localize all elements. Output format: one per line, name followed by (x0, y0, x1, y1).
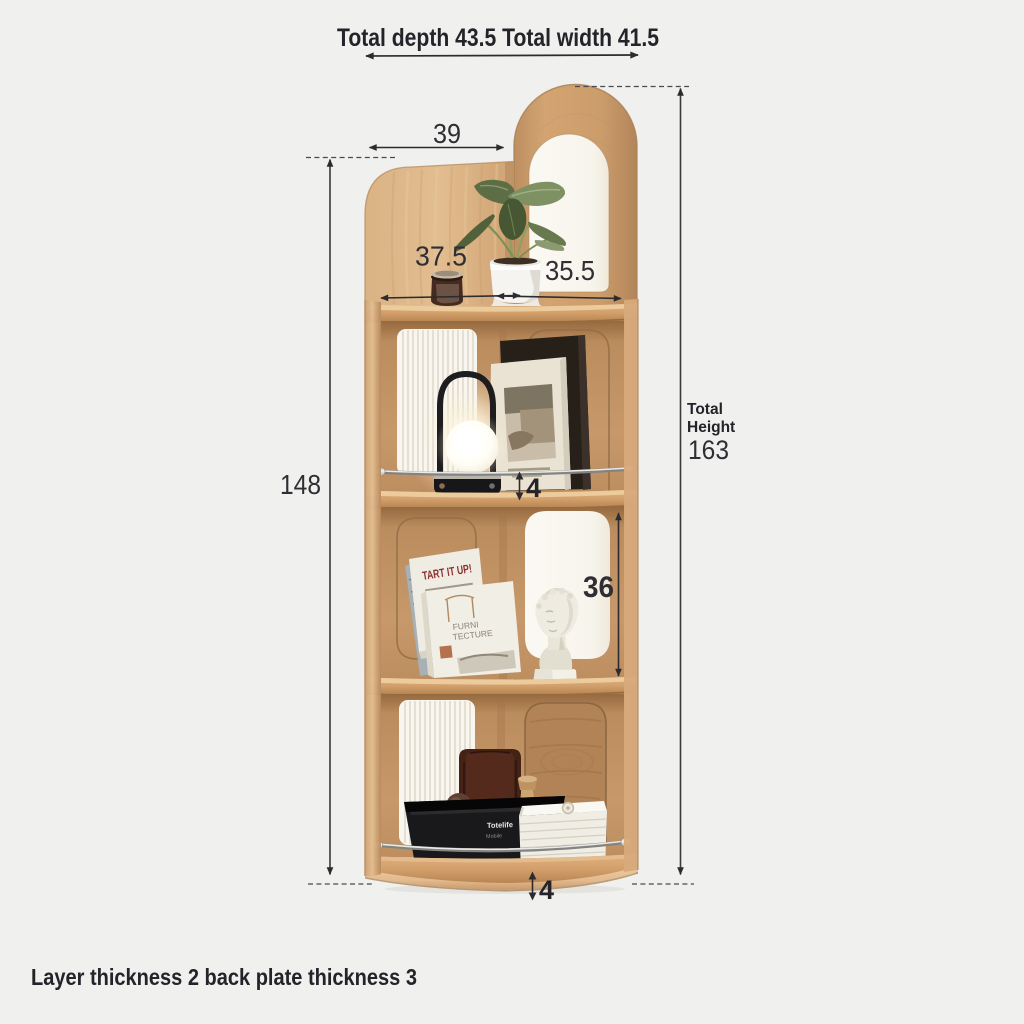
svg-text:37.5: 37.5 (415, 241, 467, 272)
svg-text:4: 4 (539, 875, 554, 905)
svg-text:Mobile: Mobile (486, 833, 502, 840)
svg-text:Total depth 43.5 Total width 4: Total depth 43.5 Total width 41.5 (337, 24, 659, 52)
svg-text:Total: Total (687, 401, 723, 418)
svg-text:36: 36 (583, 571, 614, 604)
svg-text:39: 39 (433, 118, 461, 149)
svg-text:35.5: 35.5 (545, 255, 595, 286)
svg-text:Height: Height (687, 419, 735, 436)
svg-text:148: 148 (280, 469, 321, 500)
svg-text:Layer thickness 2 back plate t: Layer thickness 2 back plate thickness 3 (31, 964, 417, 990)
svg-text:4: 4 (526, 473, 541, 503)
svg-text:163: 163 (688, 435, 729, 465)
svg-text:Totelife: Totelife (487, 820, 513, 830)
